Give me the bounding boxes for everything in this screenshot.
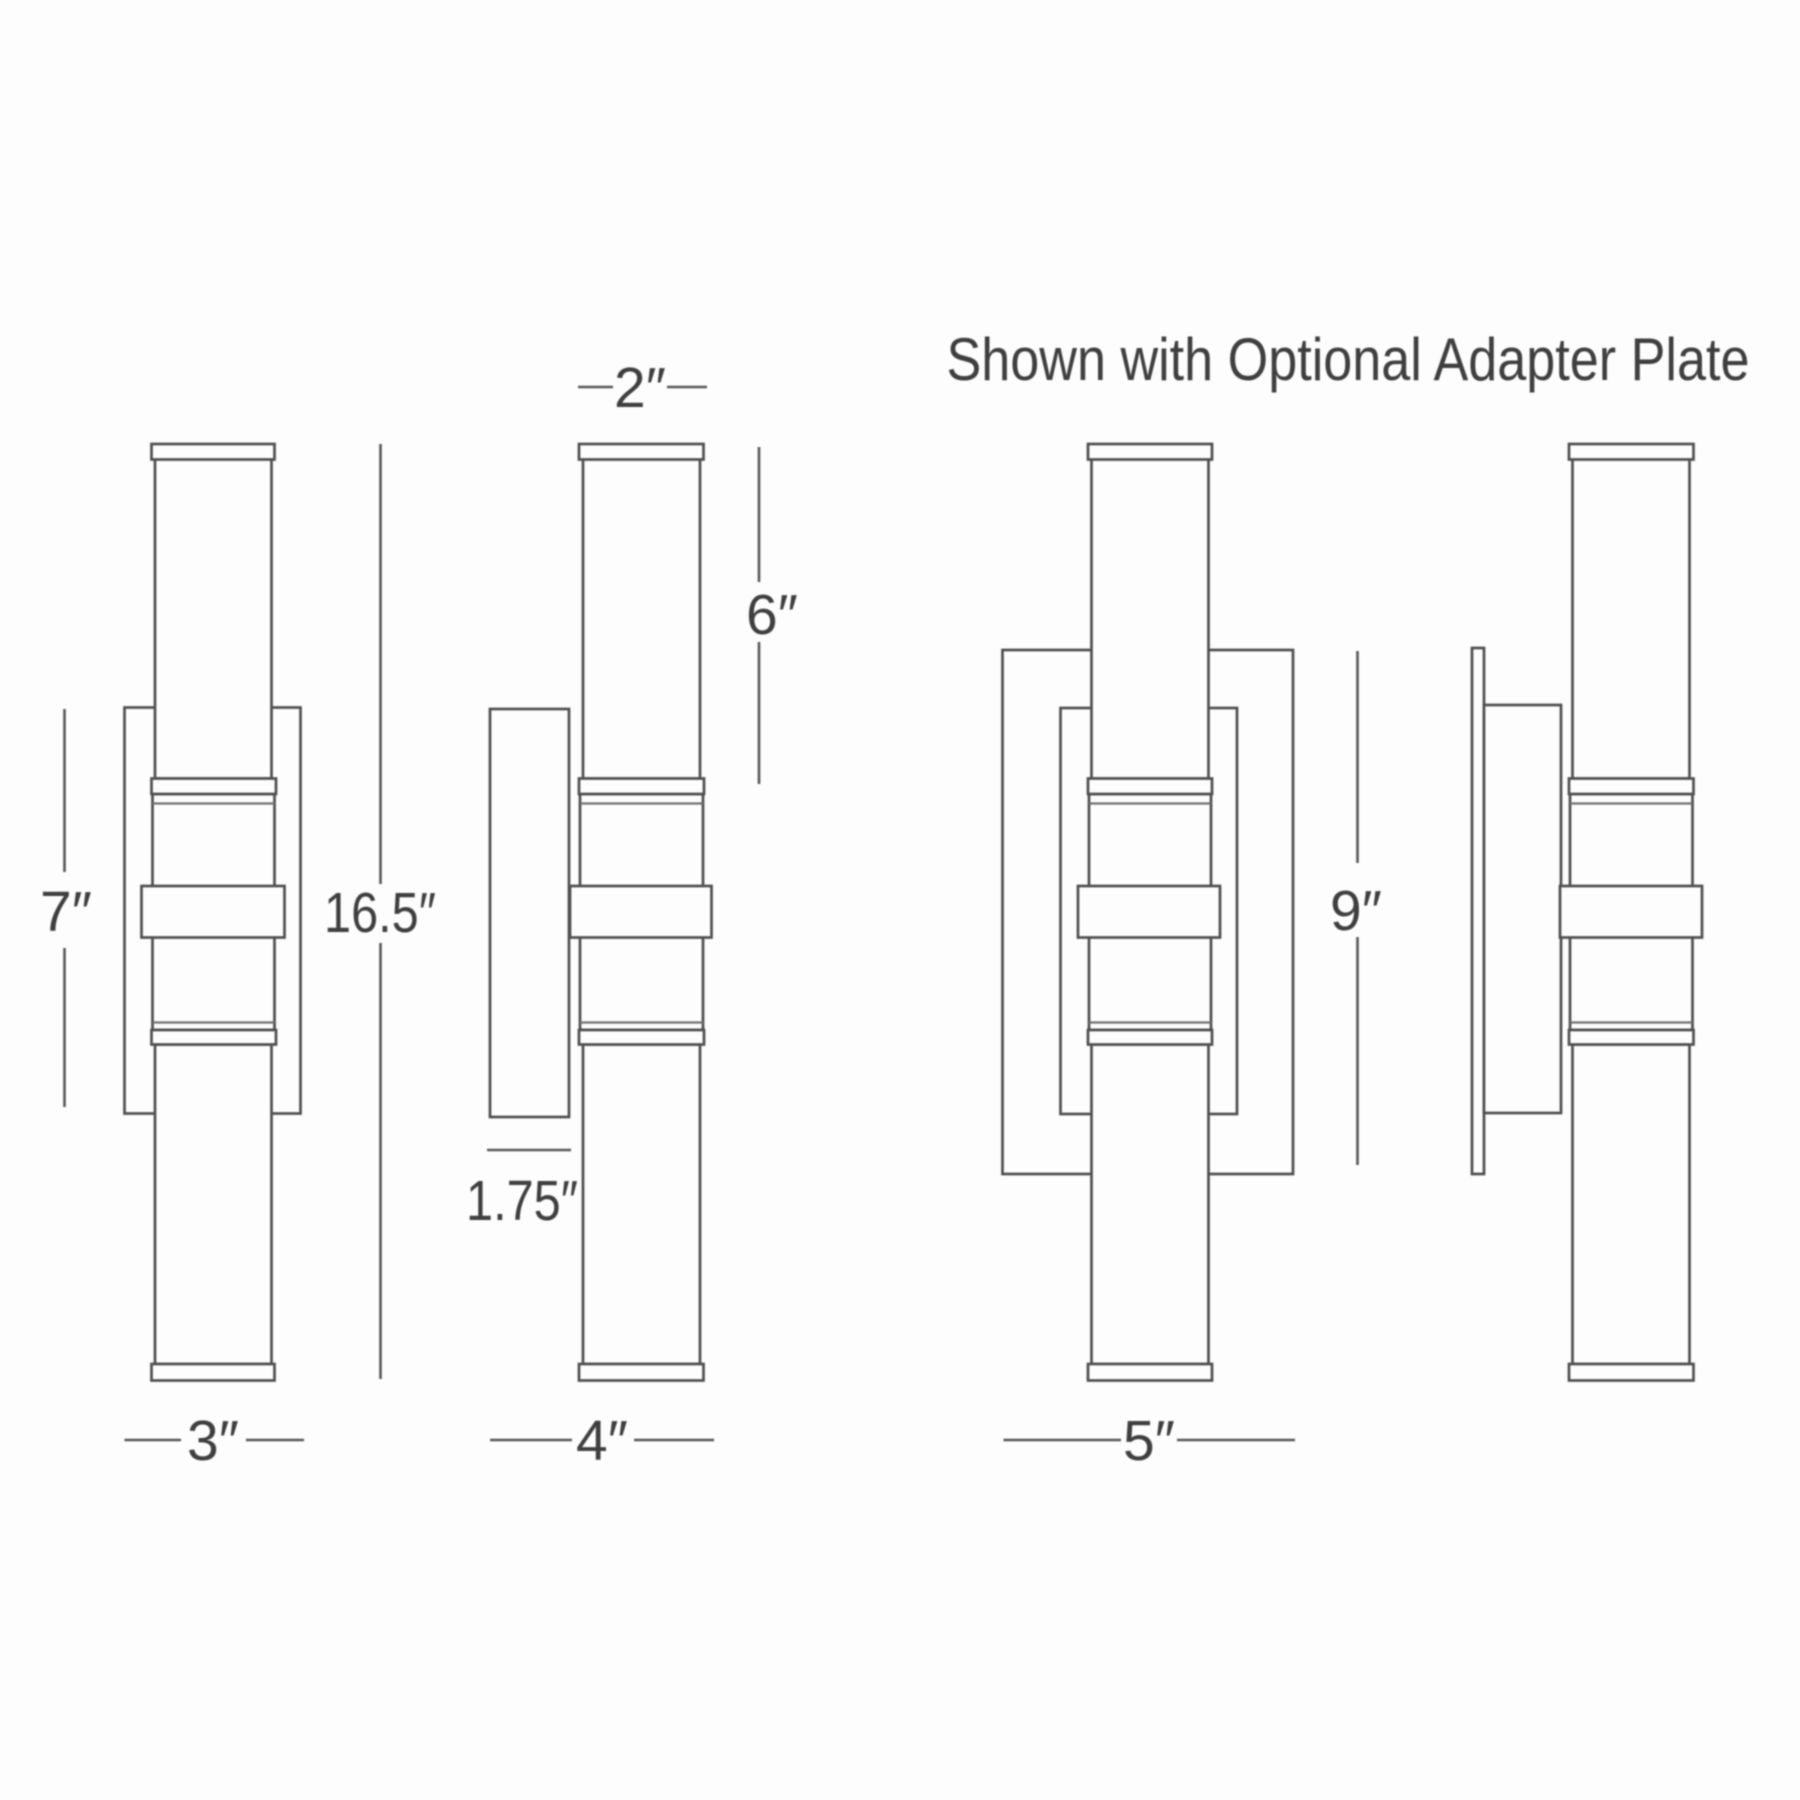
svg-text:6″: 6″ <box>746 583 798 647</box>
svg-text:5″: 5″ <box>1123 1409 1175 1473</box>
svg-text:3″: 3″ <box>187 1409 239 1473</box>
svg-text:Shown with Optional Adapter Pl: Shown with Optional Adapter Plate <box>947 326 1750 393</box>
svg-text:4″: 4″ <box>576 1409 628 1473</box>
svg-text:2″: 2″ <box>614 356 666 420</box>
svg-text:9″: 9″ <box>1330 879 1382 943</box>
svg-text:7″: 7″ <box>40 880 92 944</box>
svg-text:1.75″: 1.75″ <box>466 1169 578 1233</box>
svg-text:16.5″: 16.5″ <box>324 881 436 945</box>
